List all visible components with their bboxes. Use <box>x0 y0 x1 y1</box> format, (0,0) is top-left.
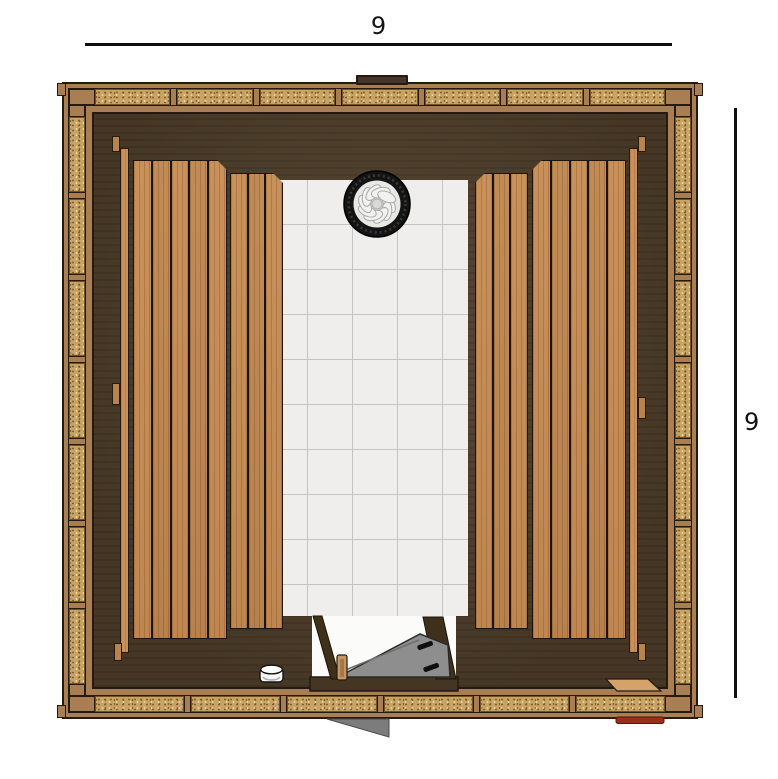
wall-stud <box>675 438 691 445</box>
insulation-panel <box>342 89 417 105</box>
bench-right-outer-tier <box>532 160 626 639</box>
bench-plank <box>190 161 207 638</box>
insulation-panel <box>69 363 85 438</box>
bench-left-outer-tier <box>133 160 227 639</box>
insulation-panel <box>69 199 85 274</box>
dimension-line-height <box>734 108 737 698</box>
insulation-panel <box>95 696 184 712</box>
bench-plank <box>494 174 510 628</box>
insulation-panel <box>675 117 691 192</box>
insulation-panel <box>191 696 280 712</box>
bench-plank <box>209 161 226 638</box>
wall-stud <box>69 356 85 363</box>
bench-left-inner-tier <box>230 173 283 629</box>
wall-bottom <box>69 696 691 712</box>
insulation-panel <box>260 89 335 105</box>
corner-frame-tab <box>694 83 703 96</box>
bench-plank <box>249 174 265 628</box>
backrest-cleat <box>638 136 646 152</box>
insulation-panel <box>480 696 569 712</box>
insulation-panel <box>287 696 376 712</box>
backrest-cleat <box>112 136 120 152</box>
insulation-panel <box>590 89 665 105</box>
corner-post <box>69 696 95 712</box>
backrest-left <box>120 148 129 653</box>
corner-post <box>69 684 85 696</box>
wall-stud <box>69 602 85 609</box>
insulation-panel <box>425 89 500 105</box>
bench-plank <box>533 161 550 638</box>
bench-plank <box>172 161 189 638</box>
wall-stud <box>569 696 576 712</box>
insulation-panel <box>177 89 252 105</box>
wall-stud <box>675 602 691 609</box>
insulation-panel <box>675 199 691 274</box>
bench-plank <box>571 161 588 638</box>
backrest-right <box>629 148 638 653</box>
insulation-panel <box>95 89 170 105</box>
wall-stud <box>69 438 85 445</box>
wall-stud <box>335 89 342 105</box>
bench-plank <box>511 174 527 628</box>
insulation-panel <box>69 281 85 356</box>
tile-walkway <box>280 180 468 616</box>
bench-plank <box>231 174 247 628</box>
wall-stud <box>675 520 691 527</box>
insulation-panel <box>675 363 691 438</box>
backrest-cleat <box>114 643 122 661</box>
insulation-panel <box>675 527 691 602</box>
wall-stud <box>184 696 191 712</box>
corner-post <box>69 89 95 105</box>
bench-plank <box>476 174 492 628</box>
backrest-cleat <box>638 397 646 419</box>
wall-stud <box>418 89 425 105</box>
bench-plank <box>552 161 569 638</box>
corner-post <box>69 105 85 117</box>
insulation-panel <box>675 445 691 520</box>
bench-plank <box>608 161 625 638</box>
wall-stud <box>473 696 480 712</box>
corner-post <box>675 105 691 117</box>
sauna-plan <box>62 82 698 719</box>
door-swing-outside <box>327 719 389 737</box>
wall-stud <box>500 89 507 105</box>
sauna-plan-canvas: 9 9 <box>0 0 778 779</box>
wall-stud <box>675 356 691 363</box>
bench-plank <box>589 161 606 638</box>
backrest-cleat <box>112 383 120 405</box>
bench-plank <box>134 161 151 638</box>
insulation-panel <box>69 445 85 520</box>
wall-stud <box>253 89 260 105</box>
corner-post <box>665 696 691 712</box>
insulation-panel <box>576 696 665 712</box>
dimension-label-height: 9 <box>744 410 759 434</box>
wall-stud <box>69 192 85 199</box>
insulation-panel <box>384 696 473 712</box>
wall-stud <box>69 274 85 281</box>
insulation-panel <box>675 281 691 356</box>
vent-tab <box>356 75 408 85</box>
wall-stud <box>280 696 287 712</box>
insulation-panel <box>507 89 582 105</box>
bench-plank <box>153 161 170 638</box>
dimension-line-width <box>85 43 672 46</box>
corner-post <box>665 89 691 105</box>
insulation-panel <box>675 609 691 684</box>
wall-stud <box>675 192 691 199</box>
door-recess <box>312 616 456 678</box>
corner-post <box>675 684 691 696</box>
dimension-label-width: 9 <box>85 14 672 38</box>
wall-stud <box>170 89 177 105</box>
wall-left <box>69 105 85 696</box>
insulation-panel <box>69 527 85 602</box>
corner-frame-tab <box>57 705 66 718</box>
wall-stud <box>675 274 691 281</box>
wall-stud <box>377 696 384 712</box>
insulation-panel <box>69 117 85 192</box>
backrest-cleat <box>638 643 646 661</box>
bench-right-inner-tier <box>475 173 528 629</box>
insulation-panel <box>69 609 85 684</box>
bench-plank <box>266 174 282 628</box>
corner-frame-tab <box>694 705 703 718</box>
wall-top <box>69 89 691 105</box>
wall-stud <box>69 520 85 527</box>
wall-right <box>675 105 691 696</box>
wall-stud <box>583 89 590 105</box>
corner-frame-tab <box>57 83 66 96</box>
